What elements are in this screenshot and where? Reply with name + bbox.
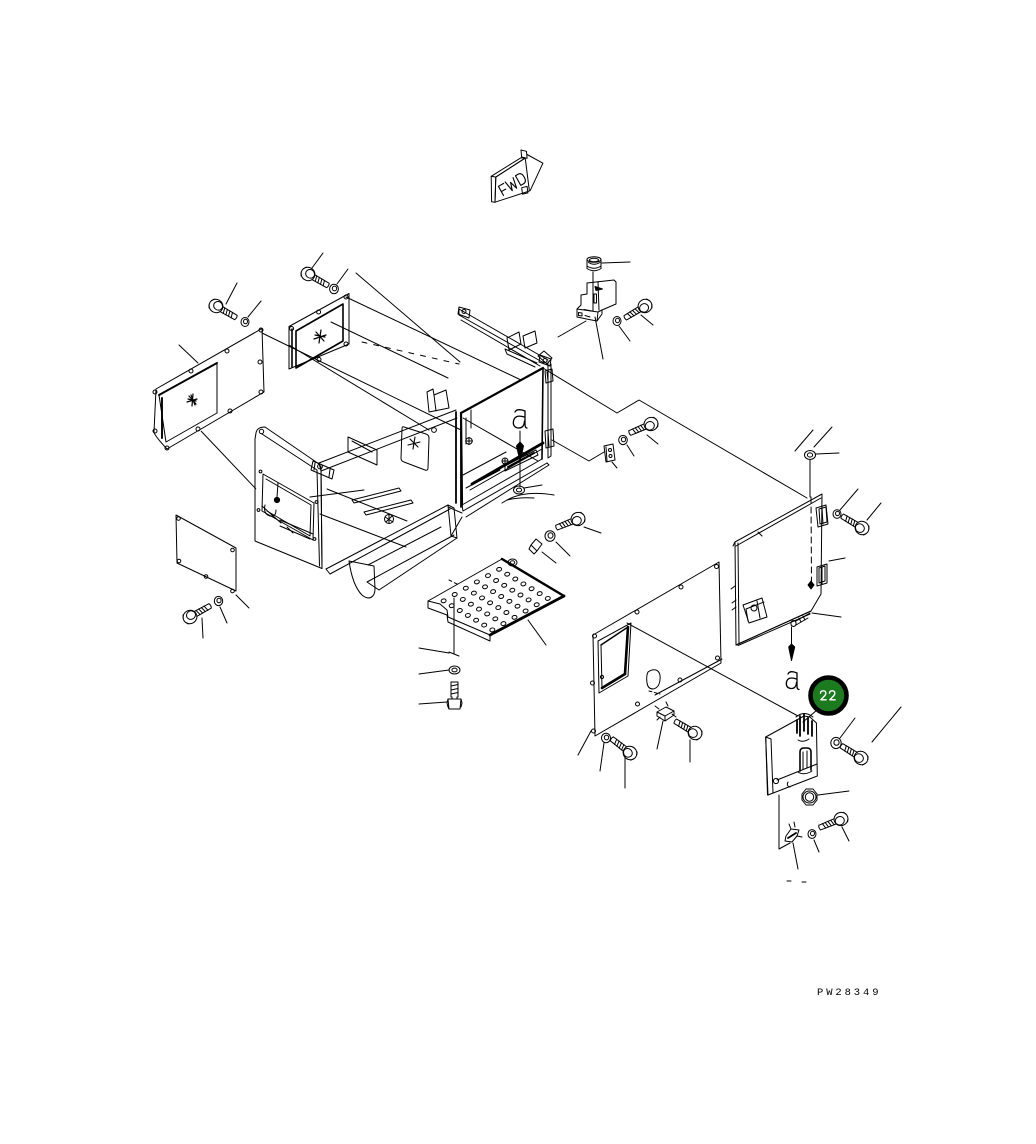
svg-text:PW28349: PW28349: [817, 987, 881, 999]
